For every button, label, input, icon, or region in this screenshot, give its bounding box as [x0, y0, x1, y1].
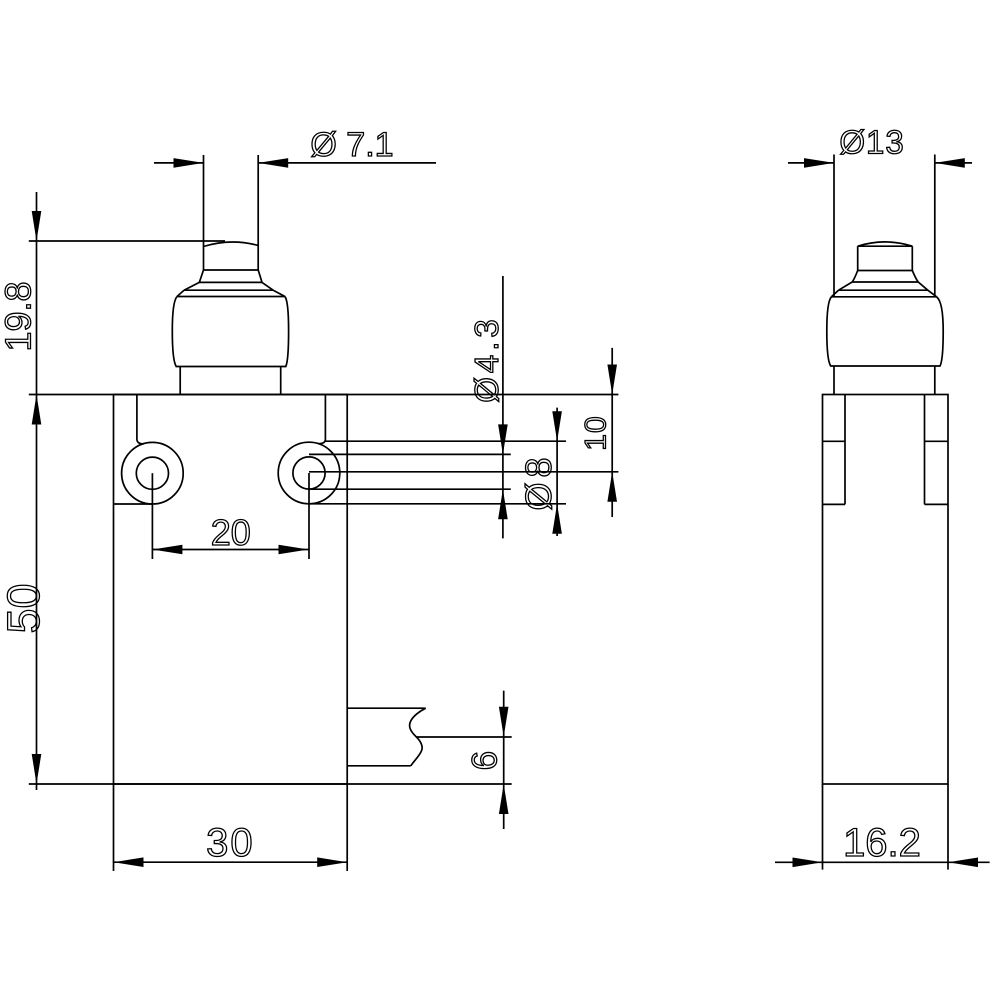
svg-text:20: 20 [211, 512, 251, 553]
svg-text:Ø 7.1: Ø 7.1 [310, 126, 393, 164]
svg-text:19.8: 19.8 [0, 281, 39, 351]
svg-text:Ø4.3: Ø4.3 [468, 315, 505, 403]
svg-text:10: 10 [580, 415, 613, 450]
svg-text:Ø8: Ø8 [518, 452, 559, 510]
svg-text:Ø13: Ø13 [839, 124, 904, 161]
svg-text:50: 50 [0, 583, 49, 633]
svg-text:16.2: 16.2 [843, 821, 921, 865]
svg-text:6: 6 [466, 751, 505, 770]
svg-text:30: 30 [206, 821, 255, 865]
